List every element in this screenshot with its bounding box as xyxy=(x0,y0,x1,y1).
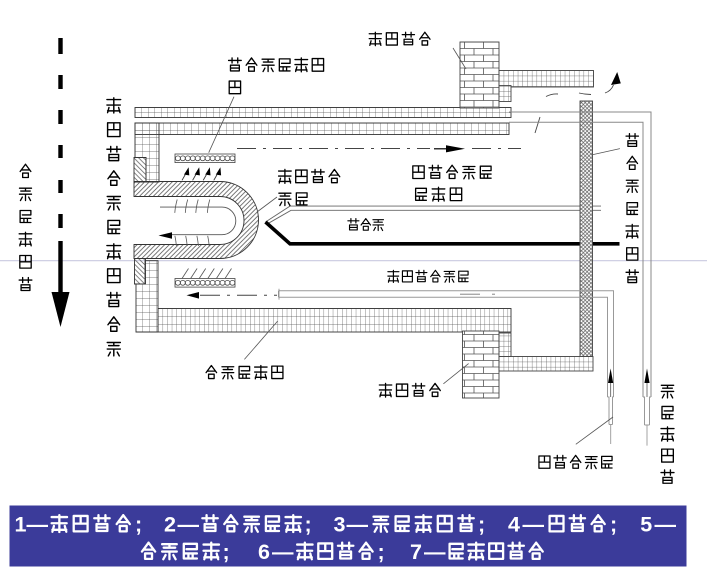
svg-text:7: 7 xyxy=(410,540,422,564)
svg-text:4: 4 xyxy=(508,513,520,537)
svg-text:3: 3 xyxy=(334,513,346,537)
svg-text:;: ; xyxy=(223,540,230,564)
svg-text:;: ; xyxy=(610,513,617,537)
svg-text:;: ; xyxy=(135,513,142,537)
svg-text:2: 2 xyxy=(164,513,176,537)
svg-text:—: — xyxy=(347,513,369,537)
svg-text:1: 1 xyxy=(15,513,27,537)
svg-text:;: ; xyxy=(378,540,385,564)
svg-text:—: — xyxy=(523,513,545,537)
svg-text:;: ; xyxy=(478,513,485,537)
svg-text:—: — xyxy=(655,513,677,537)
svg-text:—: — xyxy=(272,540,294,564)
svg-text:—: — xyxy=(27,513,49,537)
svg-text:;: ; xyxy=(305,513,312,537)
svg-text:6: 6 xyxy=(258,540,270,564)
svg-text:—: — xyxy=(178,513,200,537)
svg-text:—: — xyxy=(424,540,446,564)
svg-text:5: 5 xyxy=(640,513,652,537)
